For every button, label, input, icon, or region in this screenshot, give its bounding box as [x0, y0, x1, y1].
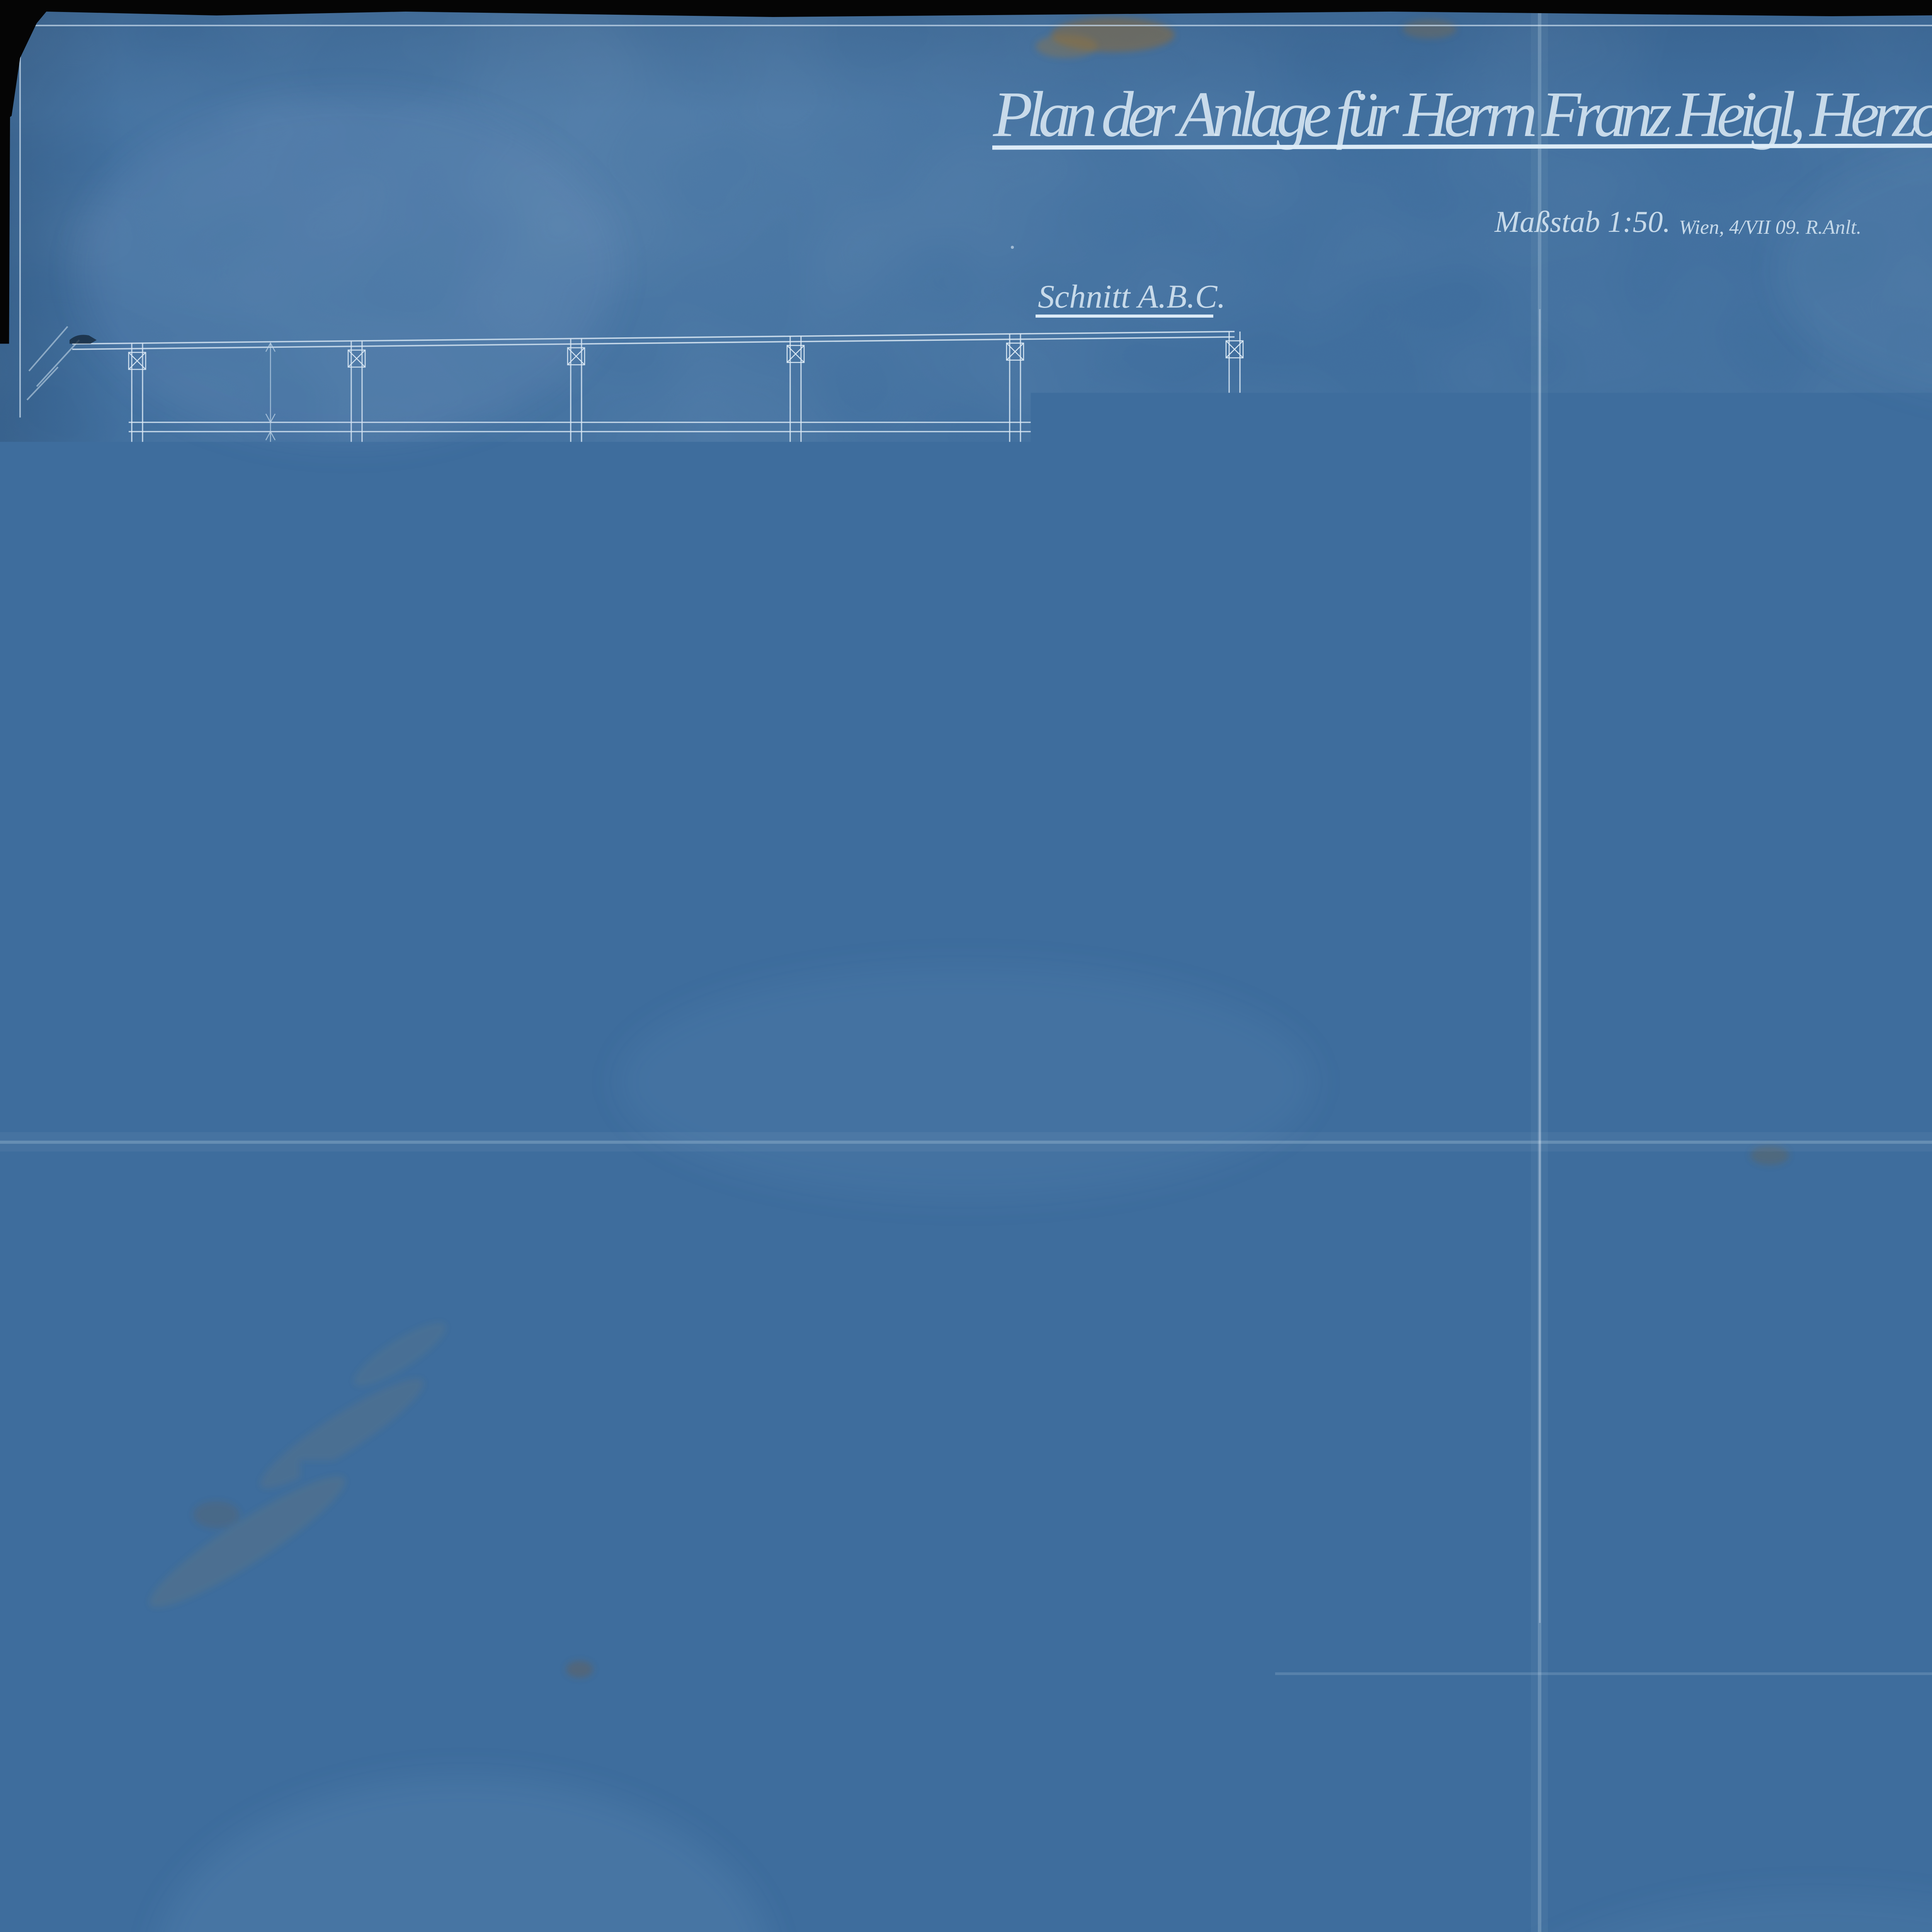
svg-text:Motor: Motor — [1376, 1344, 1390, 1376]
svg-text:300: 300 — [38, 1896, 62, 1913]
svg-text:8500: 8500 — [1913, 1388, 1932, 1409]
svg-text:2500: 2500 — [250, 895, 269, 929]
svg-text:n=200 Touren: n=200 Touren — [1398, 728, 1481, 745]
svg-text:3500: 3500 — [246, 673, 266, 711]
svg-text:5000: 5000 — [989, 1646, 1023, 1665]
svg-text:500 ᵐᵐ brt.: 500 ᵐᵐ brt. — [603, 741, 679, 760]
svg-text:7000: 7000 — [989, 1622, 1023, 1641]
svg-text:Eiserne-Türe: Eiserne-Türe — [105, 1616, 119, 1685]
svg-text:450: 450 — [112, 1534, 139, 1554]
svg-text:2000: 2000 — [988, 1693, 1022, 1712]
svg-text:4500: 4500 — [1354, 1388, 1390, 1407]
svg-text:2000: 2000 — [1121, 1631, 1155, 1650]
svg-text:1000 φ x 300 L: 1000 φ x 300 L — [1090, 1282, 1165, 1296]
svg-text:B: B — [136, 1873, 156, 1910]
svg-text:450: 450 — [1209, 1534, 1235, 1554]
svg-text:450: 450 — [1245, 1230, 1261, 1252]
svg-text:6500 x 250: 6500 x 250 — [1110, 1405, 1168, 1420]
svg-text:750: 750 — [878, 1806, 892, 1826]
svg-text:Fenster.: Fenster. — [1316, 1461, 1366, 1479]
svg-text:25 P.S.: 25 P.S. — [1410, 704, 1456, 723]
svg-text:8500: 8500 — [1801, 618, 1838, 639]
svg-text:Trockenkammer.: Trockenkammer. — [1694, 1324, 1841, 1349]
svg-text:4355: 4355 — [1113, 1533, 1148, 1553]
svg-text:750: 750 — [1248, 1521, 1264, 1543]
svg-text:Maßstab 1:50.: Maßstab 1:50. — [1494, 205, 1670, 238]
svg-text:Plan der Anlage für Herrn Fran: Plan der Anlage für Herrn Franz Heigl, H… — [993, 78, 1932, 150]
svg-text:2500: 2500 — [784, 1486, 818, 1505]
svg-text:n=200 T: n=200 T — [1412, 1332, 1425, 1374]
svg-text:n=240: n=240 — [1160, 1602, 1180, 1643]
svg-text:1000: 1000 — [86, 1706, 102, 1733]
svg-text:6500: 6500 — [781, 1786, 816, 1805]
svg-text:250: 250 — [908, 1859, 928, 1873]
svg-text:Gatter 600/650.: Gatter 600/650. — [835, 663, 953, 684]
svg-text:600: 600 — [934, 1874, 953, 1888]
svg-text:1950: 1950 — [951, 1828, 968, 1855]
svg-text:4500: 4500 — [1352, 618, 1389, 639]
svg-text:A: A — [25, 1844, 49, 1882]
svg-text:Schnittrichtung:: Schnittrichtung: — [915, 712, 1031, 732]
svg-text:1000: 1000 — [77, 1893, 108, 1910]
svg-text:Dickenhobelmasch.: Dickenhobelmasch. — [594, 718, 734, 737]
svg-text:4355: 4355 — [846, 1533, 882, 1553]
svg-text:10500: 10500 — [160, 1524, 179, 1567]
svg-text:n = 2175: n = 2175 — [954, 1805, 1003, 1819]
svg-text:3300: 3300 — [1120, 1370, 1145, 1384]
svg-text:4355: 4355 — [305, 1533, 341, 1553]
svg-text:2750: 2750 — [1556, 485, 1575, 519]
svg-text:550 φ x 200.: 550 φ x 200. — [1112, 1789, 1178, 1804]
svg-text:3000: 3000 — [1556, 679, 1575, 713]
svg-text:4355: 4355 — [549, 1533, 584, 1553]
svg-text:5000: 5000 — [1345, 1412, 1377, 1430]
svg-text:1000: 1000 — [1192, 900, 1209, 931]
svg-text:Kreissäge № 2: Kreissäge № 2 — [883, 1752, 989, 1771]
svg-text:Gebrüder: Gebrüder — [1360, 1327, 1374, 1376]
svg-text:1000 φ x 390.: 1000 φ x 390. — [1113, 1588, 1185, 1603]
svg-text:450: 450 — [1218, 1629, 1235, 1651]
svg-text:Schnitt A.B.C.: Schnitt A.B.C. — [1038, 278, 1226, 315]
svg-text:Gatter 600/650: Gatter 600/650 — [862, 1644, 971, 1664]
svg-text:n=1615: n=1615 — [715, 1773, 729, 1813]
svg-text:750: 750 — [1083, 1446, 1099, 1467]
svg-text:3750: 3750 — [249, 451, 269, 488]
svg-text:Eingang.: Eingang. — [1438, 1461, 1500, 1480]
svg-text:2400: 2400 — [1065, 1256, 1084, 1287]
svg-text:450: 450 — [1267, 1498, 1282, 1519]
svg-text:300: 300 — [1559, 586, 1575, 609]
svg-text:1800: 1800 — [923, 1775, 959, 1794]
svg-text:2500: 2500 — [69, 1771, 84, 1799]
svg-text:800: 800 — [807, 1262, 827, 1277]
svg-text:18000: 18000 — [696, 615, 749, 638]
svg-text:B: B — [1191, 1840, 1212, 1878]
svg-text:1640: 1640 — [932, 844, 951, 879]
svg-text:860: 860 — [935, 915, 953, 939]
svg-text:4000: 4000 — [974, 1484, 1008, 1503]
svg-text:25 P.S: 25 P.S — [1393, 1339, 1408, 1372]
svg-text:6500 x 250.: 6500 x 250. — [978, 1827, 1039, 1841]
svg-text:n=240.: n=240. — [1097, 833, 1149, 852]
svg-text:1200 x 1400: 1200 x 1400 — [1368, 1271, 1437, 1287]
svg-text:320: 320 — [807, 1279, 827, 1294]
svg-text:Kreissäge № 2.: Kreissäge № 2. — [1043, 708, 1153, 728]
svg-text:Schleiferei.: Schleiferei. — [1019, 1273, 1040, 1356]
svg-text:Saumkreissäge.: Saumkreissäge. — [565, 697, 675, 717]
svg-text:3200: 3200 — [1244, 1328, 1262, 1361]
svg-text:Dickenhobelmaschine 500 ᵐᵐ Hob: Dickenhobelmaschine 500 ᵐᵐ Hobelbreite. — [629, 1382, 942, 1402]
svg-text:1000 x 200 St: 1000 x 200 St — [1090, 1298, 1158, 1312]
svg-text:Gr.: Gr. — [136, 1187, 165, 1213]
svg-text:1500: 1500 — [911, 1296, 929, 1325]
svg-text:1250: 1250 — [878, 1838, 892, 1864]
svg-text:Motorraum.: Motorraum. — [1331, 659, 1425, 680]
svg-text:Trockenkammer.: Trockenkammer. — [1704, 690, 1835, 712]
svg-text:1500: 1500 — [911, 1246, 929, 1275]
